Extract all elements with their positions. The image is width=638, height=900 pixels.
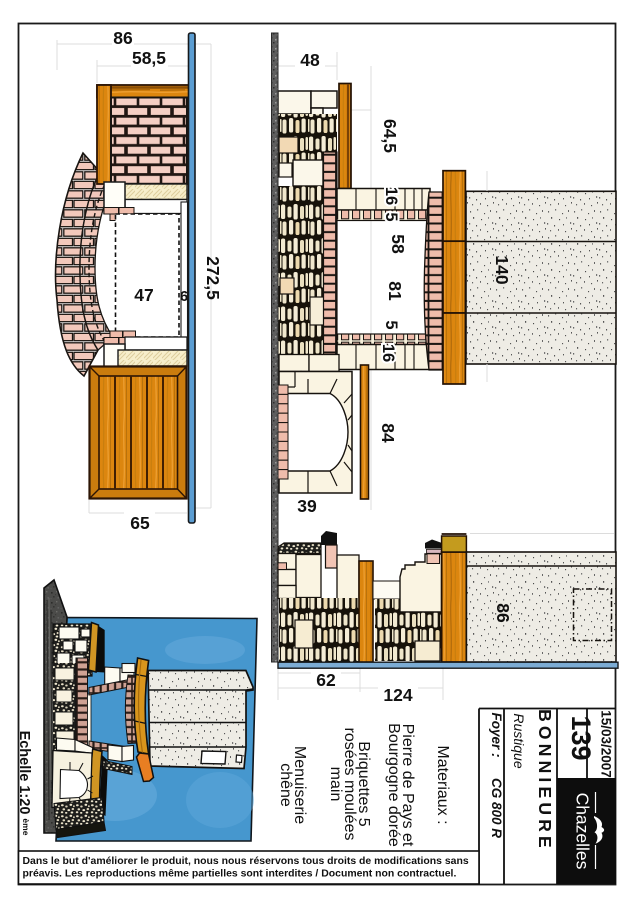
svg-text:Bourgogne dorée: Bourgogne dorée [385,723,402,847]
svg-text:58,5: 58,5 [132,48,166,68]
svg-text:65: 65 [130,513,150,533]
svg-text:Foyer :: Foyer : [489,712,504,757]
svg-text:préavis. Les reproductions mêm: préavis. Les reproductions même partiell… [23,869,457,880]
svg-text:47: 47 [134,285,153,305]
svg-text:Rustique: Rustique [511,713,527,768]
svg-text:16: 16 [382,187,400,205]
svg-text:39: 39 [297,496,317,516]
svg-text:6: 6 [180,288,188,305]
svg-text:62: 62 [316,670,336,690]
svg-text:272,5: 272,5 [203,256,223,300]
svg-text:5: 5 [382,212,400,221]
svg-text:86: 86 [113,28,133,48]
svg-text:48: 48 [300,50,320,70]
svg-text:84: 84 [378,423,398,443]
svg-text:chêne: chêne [277,763,294,807]
svg-text:5: 5 [382,320,400,329]
svg-text:15/03/2007: 15/03/2007 [599,710,614,778]
svg-text:81: 81 [385,281,405,301]
svg-text:BONNIEURE: BONNIEURE [535,709,555,852]
svg-text:58: 58 [388,234,408,254]
svg-text:139: 139 [566,715,596,760]
svg-text:Dans le but d'améliorer le pro: Dans le but d'améliorer le produit, nous… [23,856,469,867]
svg-text:main: main [327,767,344,802]
svg-text:140: 140 [492,255,512,284]
svg-text:Materiaux :: Materiaux : [434,745,451,824]
svg-text:Chazelles: Chazelles [573,793,593,870]
svg-text:16: 16 [379,344,397,362]
svg-text:86: 86 [493,603,513,623]
svg-text:124: 124 [383,685,412,705]
svg-text:CG 800 R: CG 800 R [489,778,504,838]
svg-text:64,5: 64,5 [380,119,400,153]
